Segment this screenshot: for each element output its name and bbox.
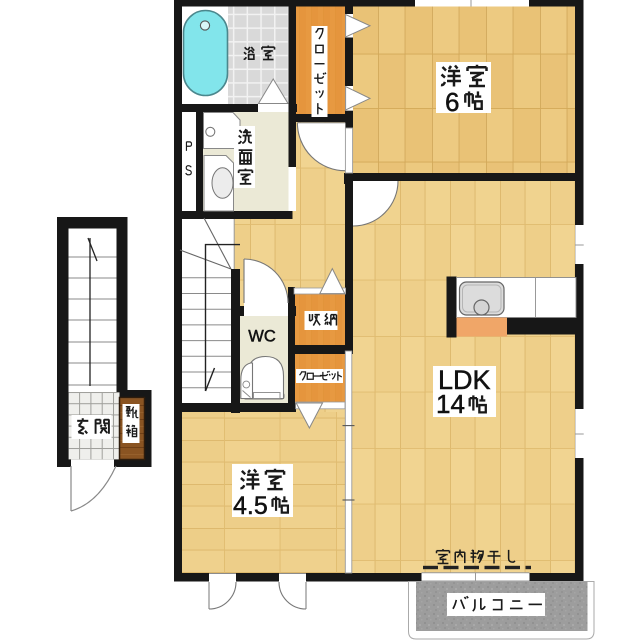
- svg-text:6: 6: [445, 87, 459, 117]
- svg-text:14: 14: [436, 389, 465, 419]
- svg-text:4.5: 4.5: [233, 492, 268, 520]
- svg-text:WC: WC: [248, 328, 276, 346]
